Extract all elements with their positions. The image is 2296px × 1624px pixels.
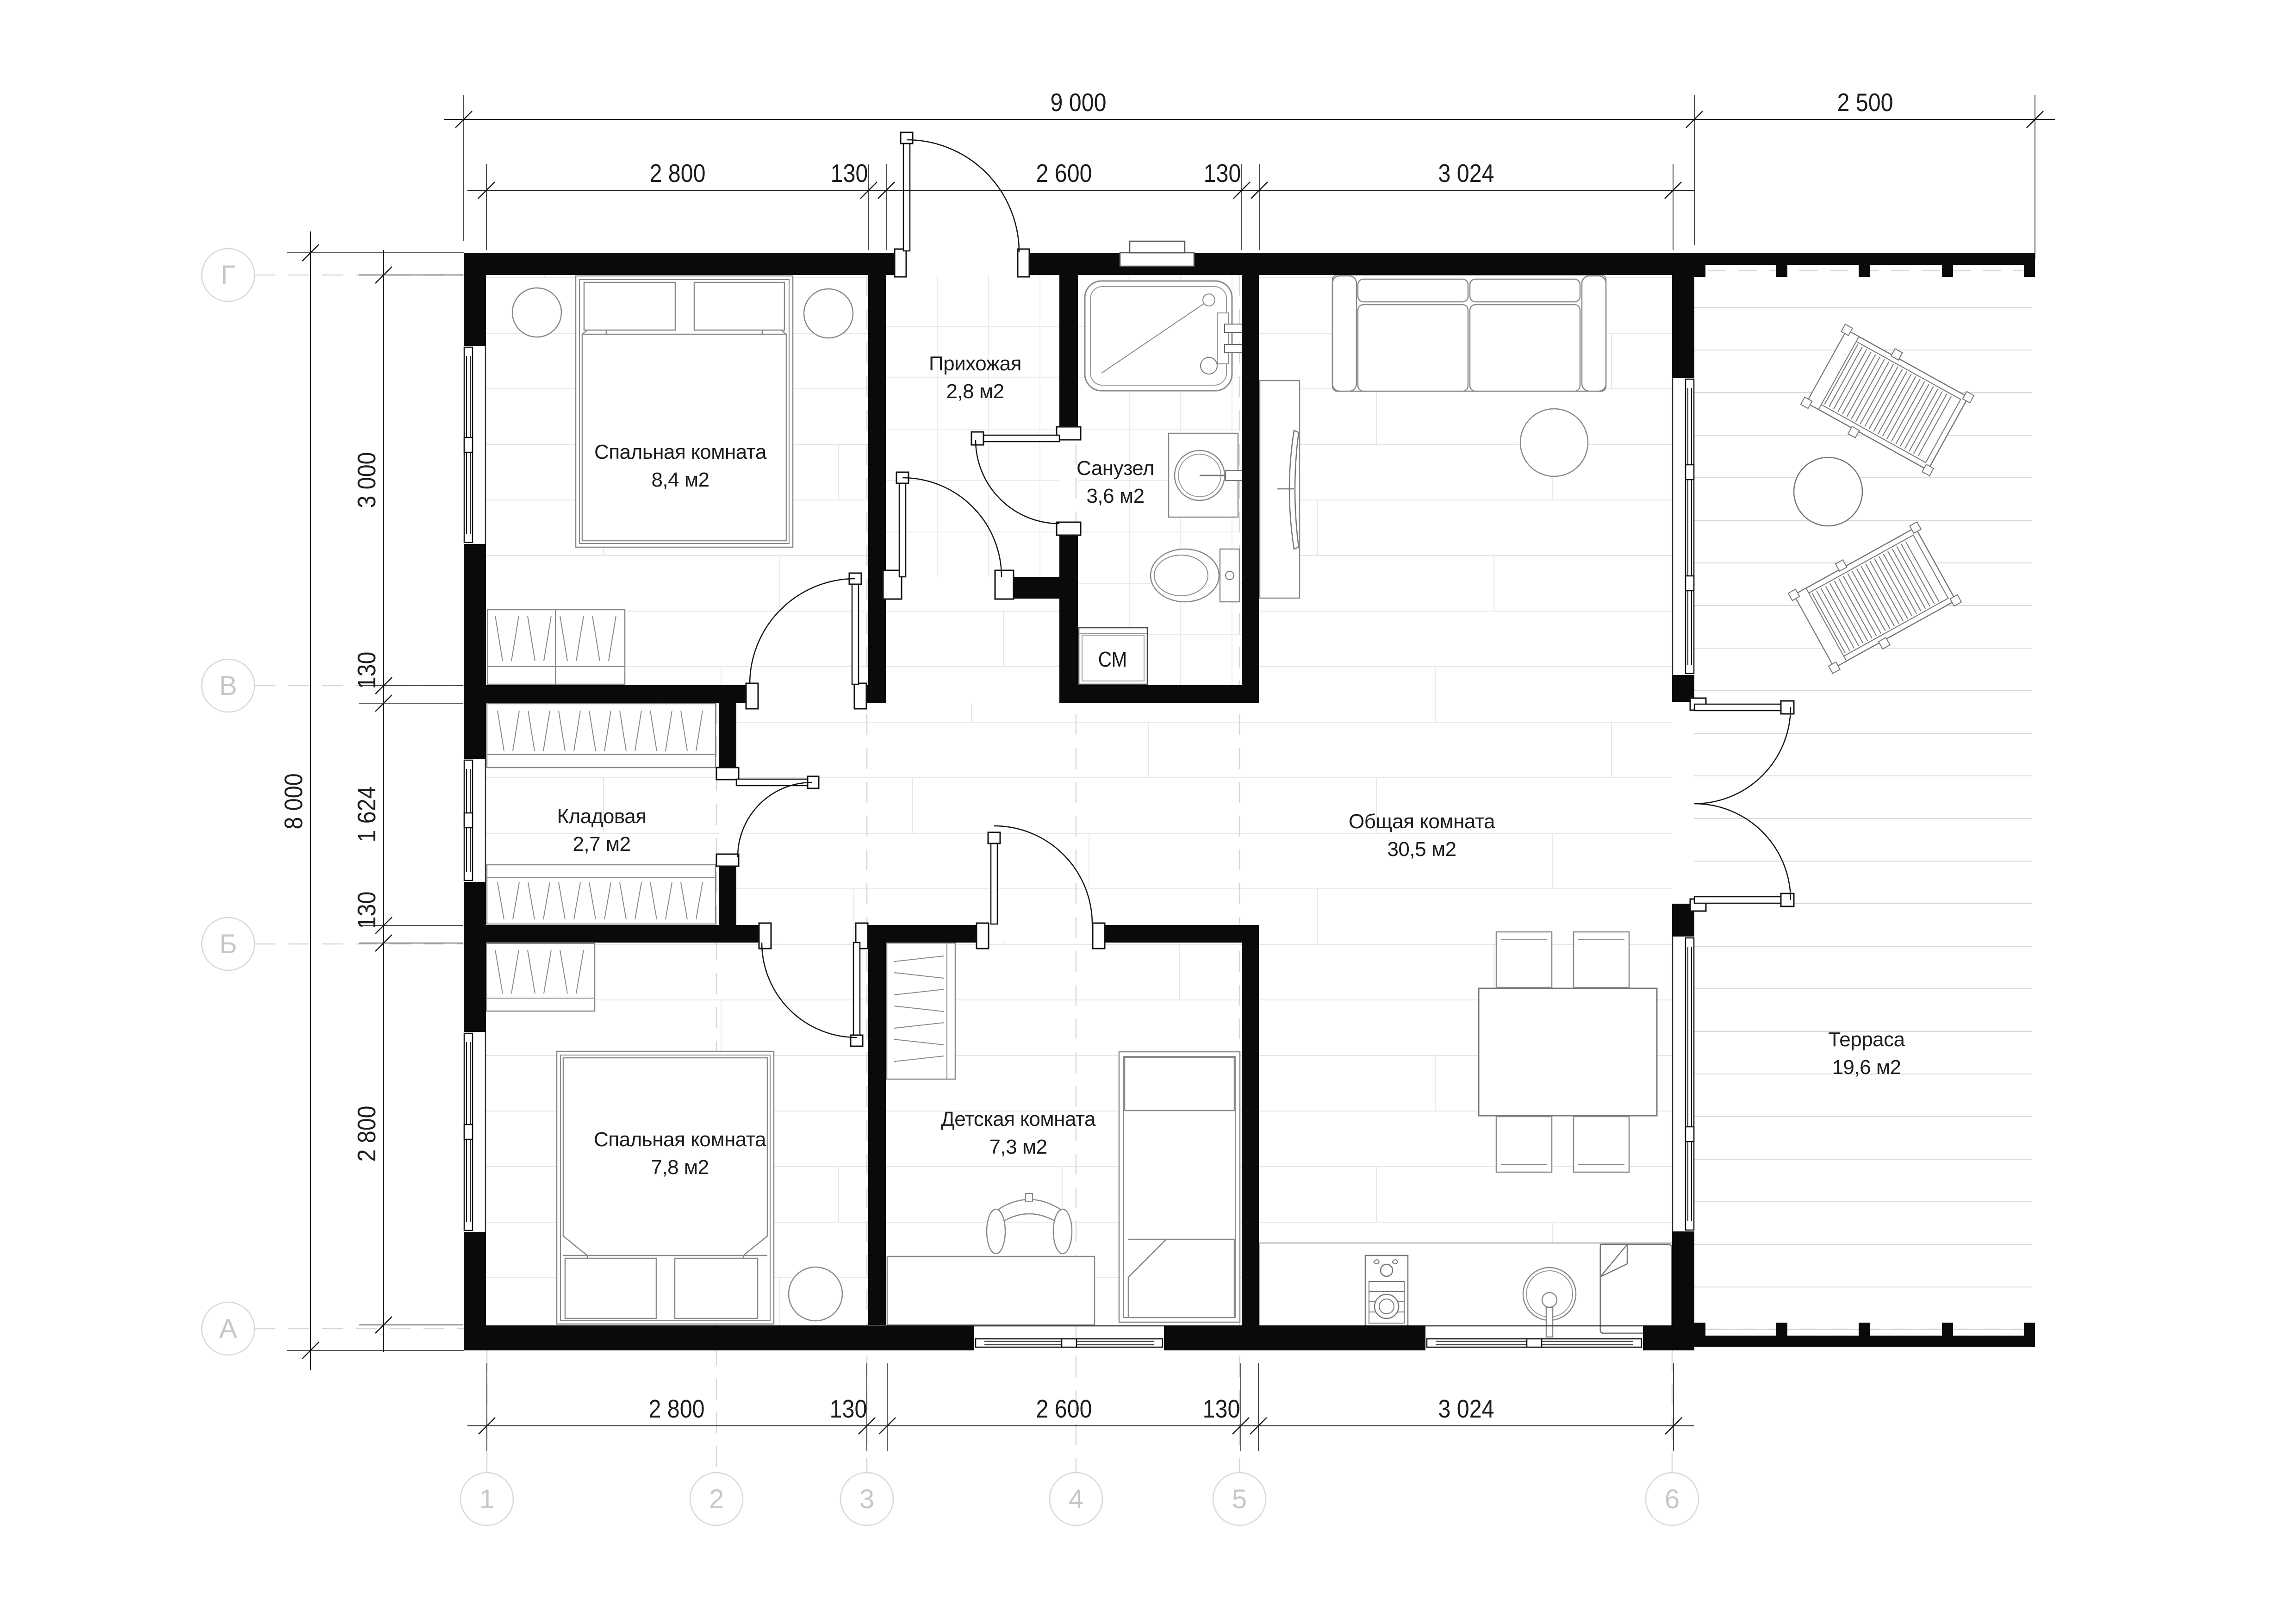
svg-text:2 600: 2 600	[1036, 159, 1092, 187]
svg-text:2: 2	[709, 1484, 724, 1514]
svg-text:Кладовая: Кладовая	[557, 805, 646, 828]
svg-text:8,4 м2: 8,4 м2	[651, 468, 709, 491]
svg-text:7,3 м2: 7,3 м2	[989, 1136, 1047, 1158]
svg-text:3 000: 3 000	[352, 452, 381, 508]
svg-text:СМ: СМ	[1098, 648, 1127, 672]
svg-text:130: 130	[352, 652, 381, 689]
svg-text:4: 4	[1069, 1484, 1083, 1514]
svg-text:3 024: 3 024	[1438, 159, 1494, 187]
svg-text:2 600: 2 600	[1036, 1394, 1092, 1423]
svg-text:130: 130	[352, 892, 381, 929]
svg-text:2,7 м2: 2,7 м2	[572, 833, 630, 856]
svg-text:Терраса: Терраса	[1828, 1028, 1905, 1051]
svg-text:5: 5	[1232, 1484, 1247, 1514]
svg-text:Прихожая: Прихожая	[929, 352, 1021, 375]
svg-text:2 800: 2 800	[648, 1394, 704, 1423]
svg-text:Детская комната: Детская комната	[941, 1108, 1096, 1131]
svg-text:Спальная комната: Спальная комната	[594, 1128, 766, 1151]
svg-text:6: 6	[1665, 1484, 1680, 1514]
svg-text:3: 3	[859, 1484, 874, 1514]
svg-text:130: 130	[830, 1394, 867, 1423]
svg-text:1: 1	[479, 1484, 494, 1514]
svg-text:2 800: 2 800	[352, 1106, 381, 1162]
svg-text:130: 130	[831, 159, 868, 187]
svg-text:130: 130	[1204, 159, 1241, 187]
svg-text:3,6 м2: 3,6 м2	[1086, 485, 1144, 507]
svg-text:Санузел: Санузел	[1076, 457, 1154, 480]
svg-text:2,8 м2: 2,8 м2	[946, 380, 1004, 403]
svg-text:Общая комната: Общая комната	[1349, 810, 1495, 833]
svg-text:130: 130	[1203, 1394, 1240, 1423]
svg-text:19,6 м2: 19,6 м2	[1832, 1056, 1901, 1079]
svg-text:2 800: 2 800	[649, 159, 705, 187]
svg-text:Б: Б	[219, 929, 237, 959]
svg-text:8 000: 8 000	[279, 773, 308, 829]
svg-text:9 000: 9 000	[1050, 88, 1106, 117]
svg-text:1 624: 1 624	[352, 786, 381, 842]
svg-text:В: В	[219, 671, 237, 701]
svg-text:Г: Г	[221, 260, 235, 290]
svg-text:30,5 м2: 30,5 м2	[1387, 838, 1456, 861]
svg-text:Спальная комната: Спальная комната	[594, 441, 767, 463]
svg-text:А: А	[219, 1314, 237, 1344]
svg-text:7,8 м2: 7,8 м2	[651, 1156, 709, 1179]
svg-text:2 500: 2 500	[1837, 88, 1893, 117]
svg-text:3 024: 3 024	[1438, 1394, 1494, 1423]
